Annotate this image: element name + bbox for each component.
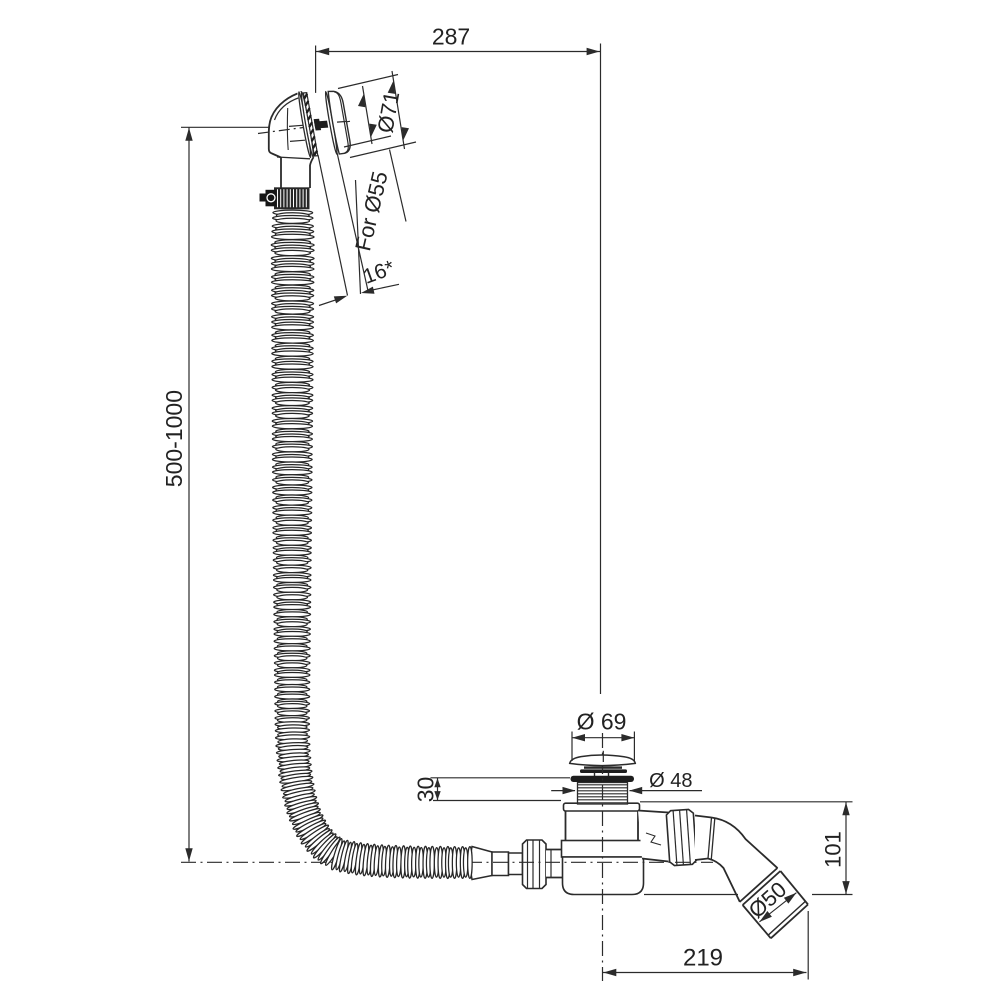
svg-text:500-1000: 500-1000 [161,390,187,487]
svg-text:30: 30 [413,777,439,803]
svg-text:287: 287 [432,24,470,50]
svg-text:219: 219 [683,945,723,972]
svg-text:101: 101 [821,831,846,868]
svg-text:Ø 69: Ø 69 [577,708,627,734]
svg-text:Ø 48: Ø 48 [649,770,692,792]
